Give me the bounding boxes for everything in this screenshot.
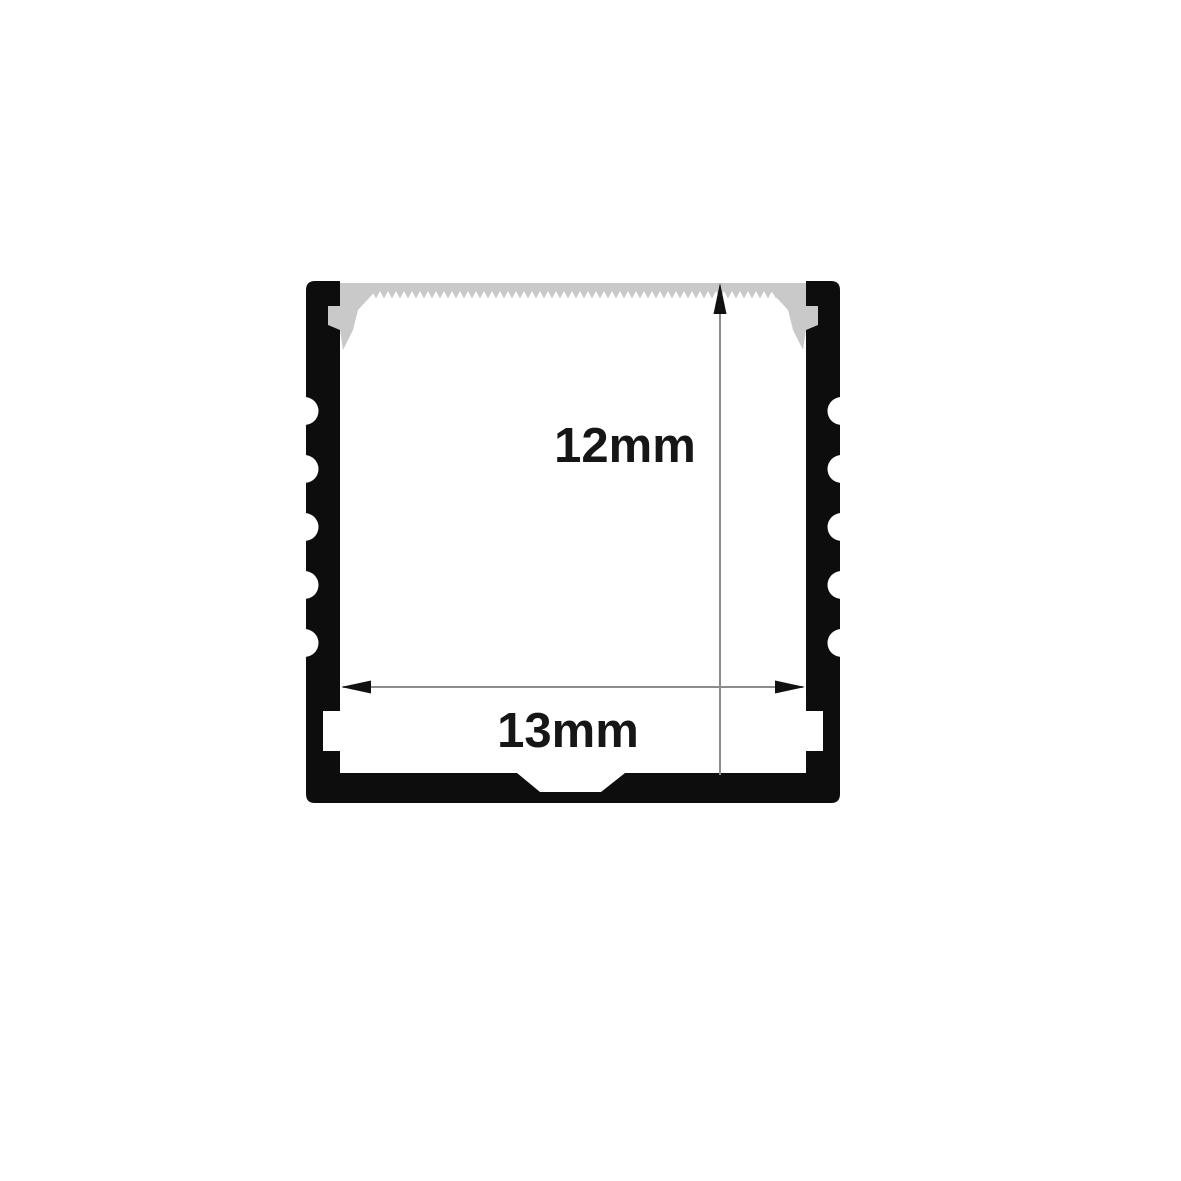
fin-scallop xyxy=(291,571,319,599)
fin-scallop xyxy=(291,455,319,483)
width-dimension-label: 13mm xyxy=(497,704,639,758)
fin-scallop xyxy=(828,397,856,425)
diagram-background xyxy=(0,0,1181,1181)
diffuser-strip xyxy=(340,283,806,292)
fin-scallop xyxy=(828,455,856,483)
fin-scallop xyxy=(291,513,319,541)
fin-scallop xyxy=(828,571,856,599)
profile-diagram: 12mm 13mm xyxy=(0,0,1181,1181)
fin-scallop xyxy=(291,629,319,657)
fin-scallop xyxy=(291,397,319,425)
fin-scallop xyxy=(828,513,856,541)
height-dimension-label: 12mm xyxy=(554,419,696,473)
diagram-canvas: 12mm 13mm xyxy=(0,0,1181,1181)
diffuser-teeth-row xyxy=(340,291,806,299)
fin-scallop xyxy=(828,629,856,657)
